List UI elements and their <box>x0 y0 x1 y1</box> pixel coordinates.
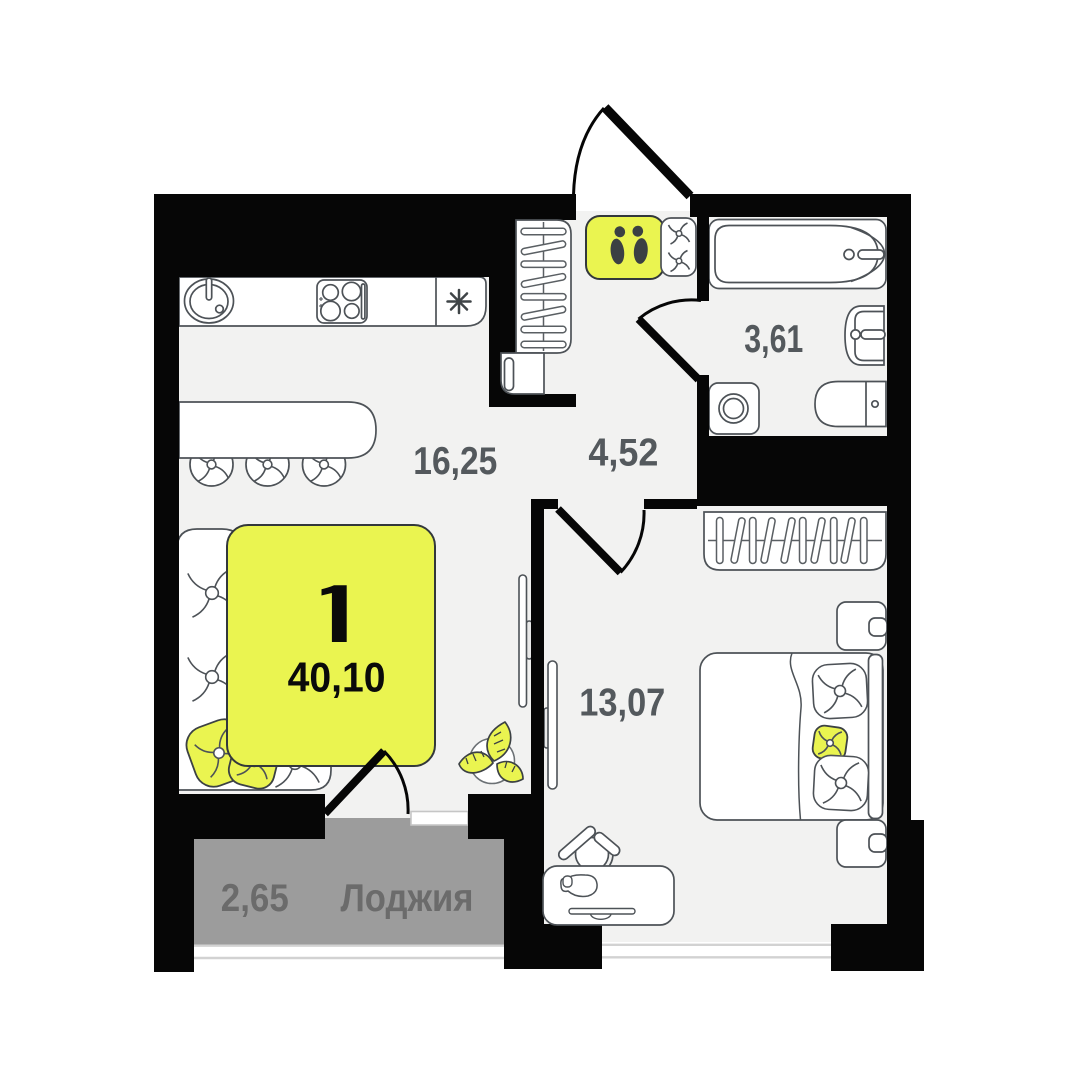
svg-text:40,10: 40,10 <box>288 653 386 700</box>
svg-text:Лоджия: Лоджия <box>341 877 474 920</box>
svg-text:16,25: 16,25 <box>413 440 497 483</box>
svg-text:3,61: 3,61 <box>744 318 803 361</box>
svg-text:13,07: 13,07 <box>579 681 665 724</box>
svg-text:4,52: 4,52 <box>588 432 658 475</box>
svg-text:2,65: 2,65 <box>221 877 289 920</box>
